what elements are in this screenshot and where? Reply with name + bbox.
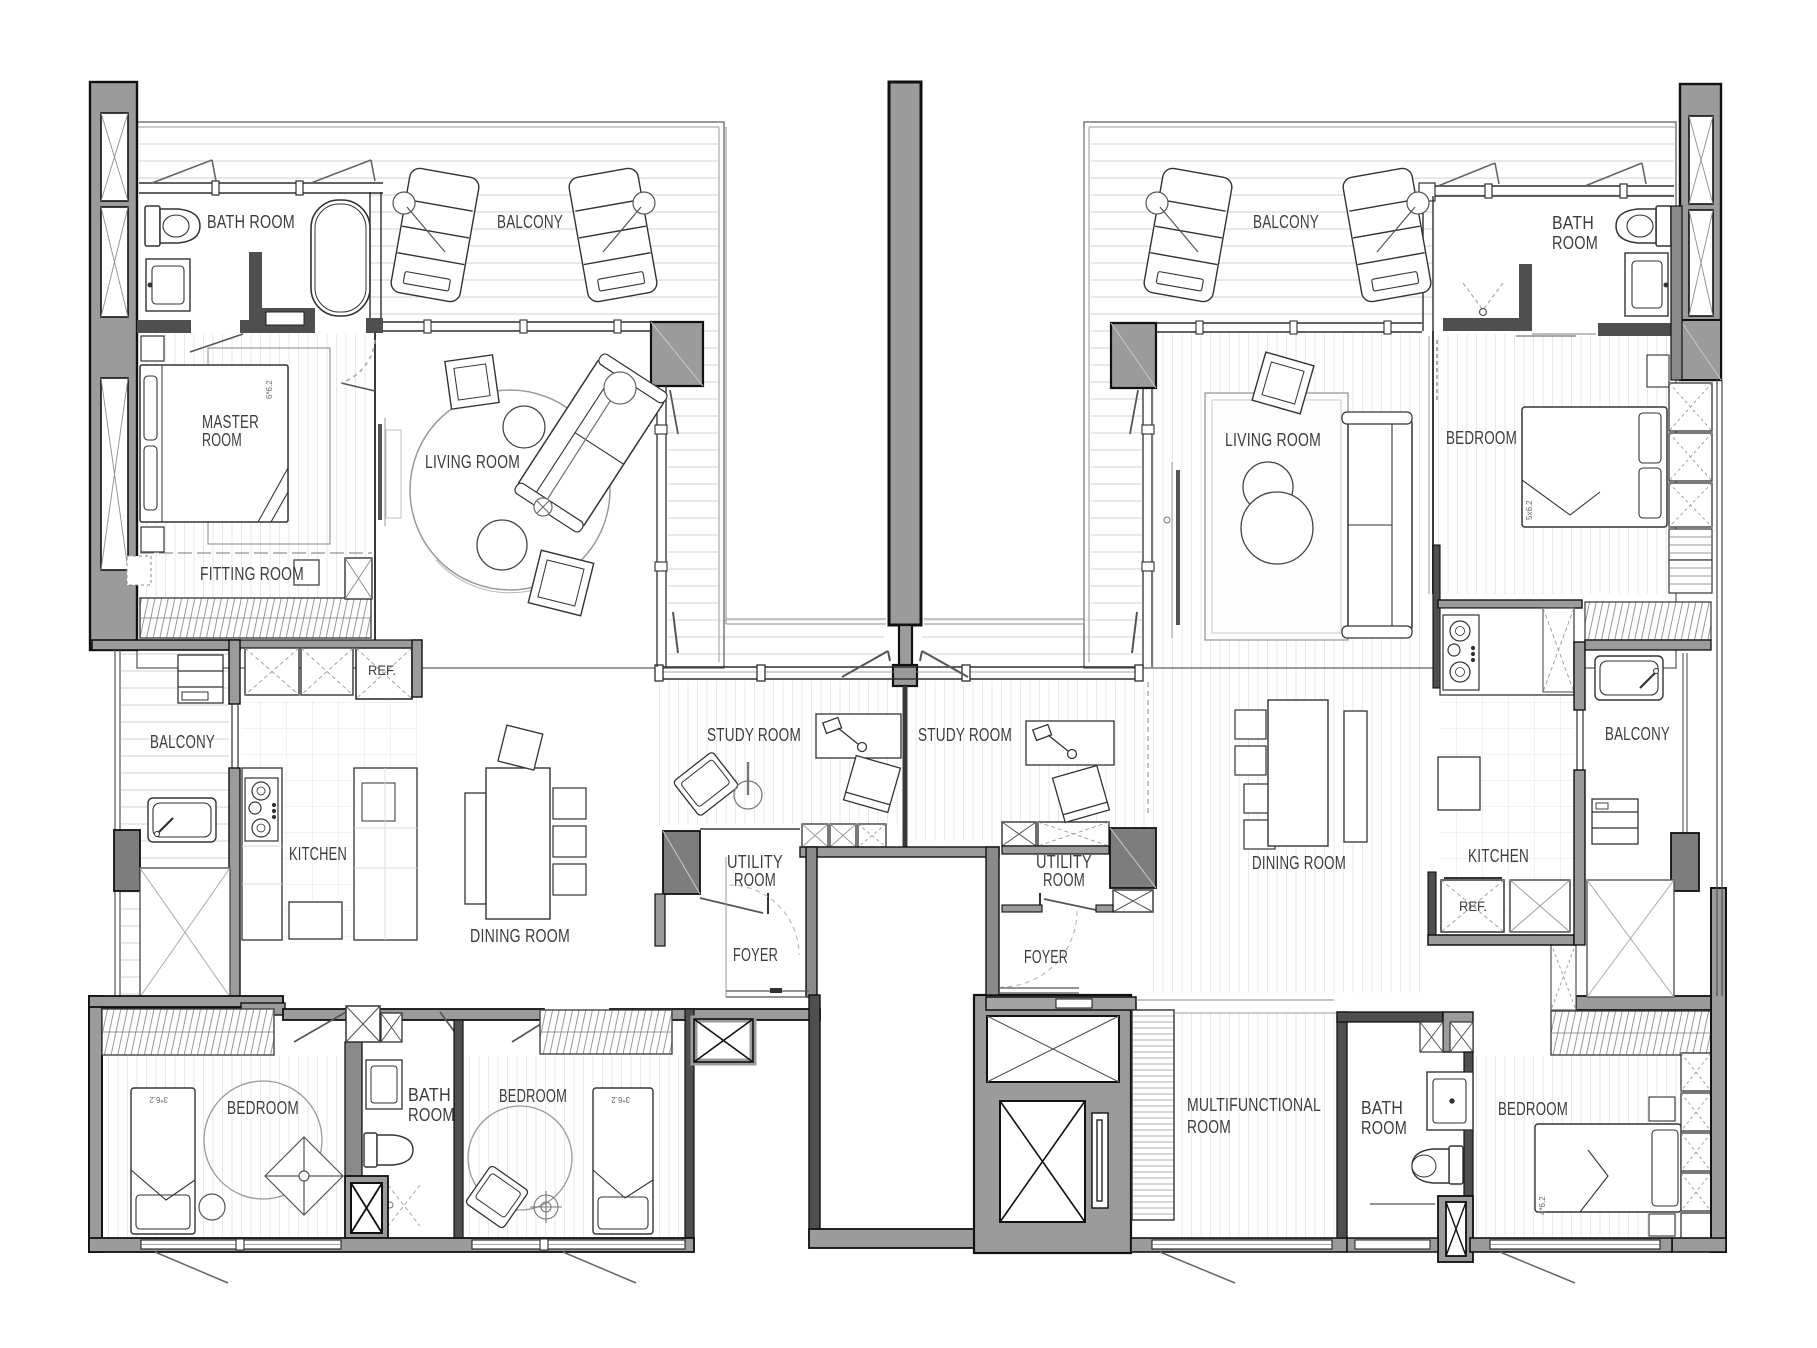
svg-text:ROOM: ROOM — [1043, 870, 1085, 890]
svg-text:BATH ROOM: BATH ROOM — [207, 212, 295, 232]
svg-text:ROOM: ROOM — [1187, 1117, 1231, 1137]
svg-text:BALCONY: BALCONY — [1605, 724, 1670, 744]
svg-text:ROOM: ROOM — [202, 430, 242, 450]
svg-text:REF.: REF. — [368, 662, 396, 678]
svg-text:KITCHEN: KITCHEN — [289, 844, 347, 864]
svg-text:5x6.2: 5x6.2 — [1525, 500, 1534, 520]
svg-text:BALCONY: BALCONY — [1253, 212, 1319, 232]
svg-text:UTILITY: UTILITY — [1036, 852, 1092, 872]
svg-text:BEDROOM: BEDROOM — [1498, 1099, 1568, 1119]
svg-text:UTILITY: UTILITY — [727, 852, 783, 872]
svg-text:BALCONY: BALCONY — [497, 212, 563, 232]
svg-text:3*6.2: 3*6.2 — [149, 1095, 168, 1104]
svg-text:STUDY ROOM: STUDY ROOM — [707, 725, 801, 745]
svg-text:ROOM: ROOM — [734, 870, 776, 890]
svg-text:6*6.2: 6*6.2 — [265, 380, 274, 399]
svg-text:BEDROOM: BEDROOM — [499, 1086, 567, 1106]
svg-text:STUDY ROOM: STUDY ROOM — [918, 725, 1012, 745]
svg-text:FOYER: FOYER — [733, 945, 778, 965]
svg-text:LIVING ROOM: LIVING ROOM — [1225, 430, 1321, 450]
svg-text:MULTIFUNCTIONAL: MULTIFUNCTIONAL — [1187, 1095, 1321, 1115]
svg-text:BEDROOM: BEDROOM — [1446, 428, 1517, 448]
svg-text:BALCONY: BALCONY — [150, 732, 215, 752]
svg-text:FOYER: FOYER — [1024, 947, 1068, 967]
svg-text:FITTING ROOM: FITTING ROOM — [200, 564, 304, 584]
svg-text:3*6.2: 3*6.2 — [611, 1095, 630, 1104]
svg-text:BATH: BATH — [1552, 213, 1594, 233]
svg-text:REF.: REF. — [1459, 898, 1487, 914]
svg-text:ROOM: ROOM — [1361, 1118, 1407, 1138]
svg-text:4*6.2: 4*6.2 — [1538, 1196, 1547, 1215]
svg-text:BEDROOM: BEDROOM — [227, 1098, 299, 1118]
svg-text:ROOM: ROOM — [408, 1105, 455, 1125]
svg-text:BATH: BATH — [408, 1085, 451, 1105]
svg-text:ROOM: ROOM — [1552, 233, 1598, 253]
svg-text:DINING ROOM: DINING ROOM — [1252, 853, 1346, 873]
svg-text:KITCHEN: KITCHEN — [1468, 846, 1529, 866]
svg-text:MASTER: MASTER — [202, 412, 259, 432]
svg-text:BATH: BATH — [1361, 1098, 1403, 1118]
svg-text:DINING ROOM: DINING ROOM — [470, 926, 570, 946]
svg-text:LIVING ROOM: LIVING ROOM — [425, 452, 520, 472]
